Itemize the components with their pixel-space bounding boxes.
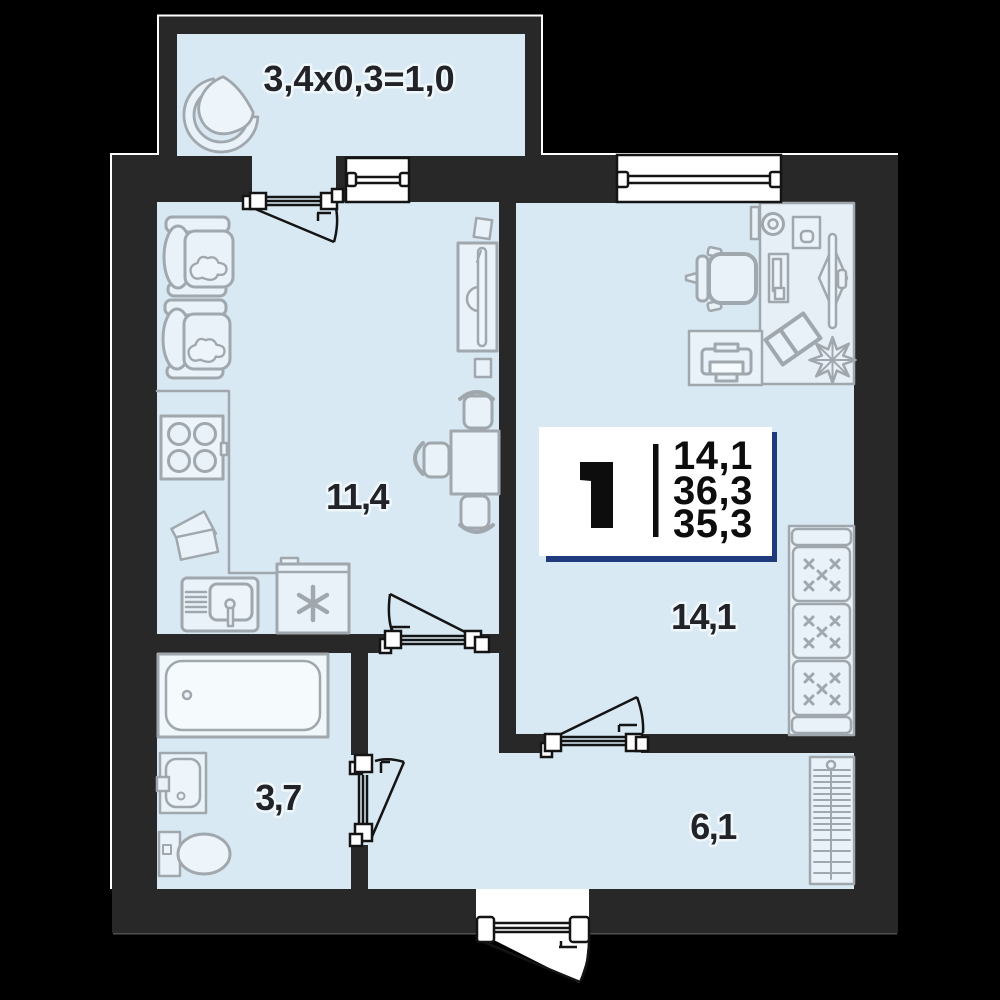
svg-text:3,4x0,3=1,0: 3,4x0,3=1,0 <box>263 58 454 99</box>
svg-text:6,1: 6,1 <box>690 806 737 847</box>
svg-text:3,7: 3,7 <box>255 777 301 818</box>
svg-text:11,4: 11,4 <box>326 476 390 517</box>
svg-text:35,3: 35,3 <box>673 502 753 546</box>
svg-text:14,1: 14,1 <box>671 596 737 637</box>
